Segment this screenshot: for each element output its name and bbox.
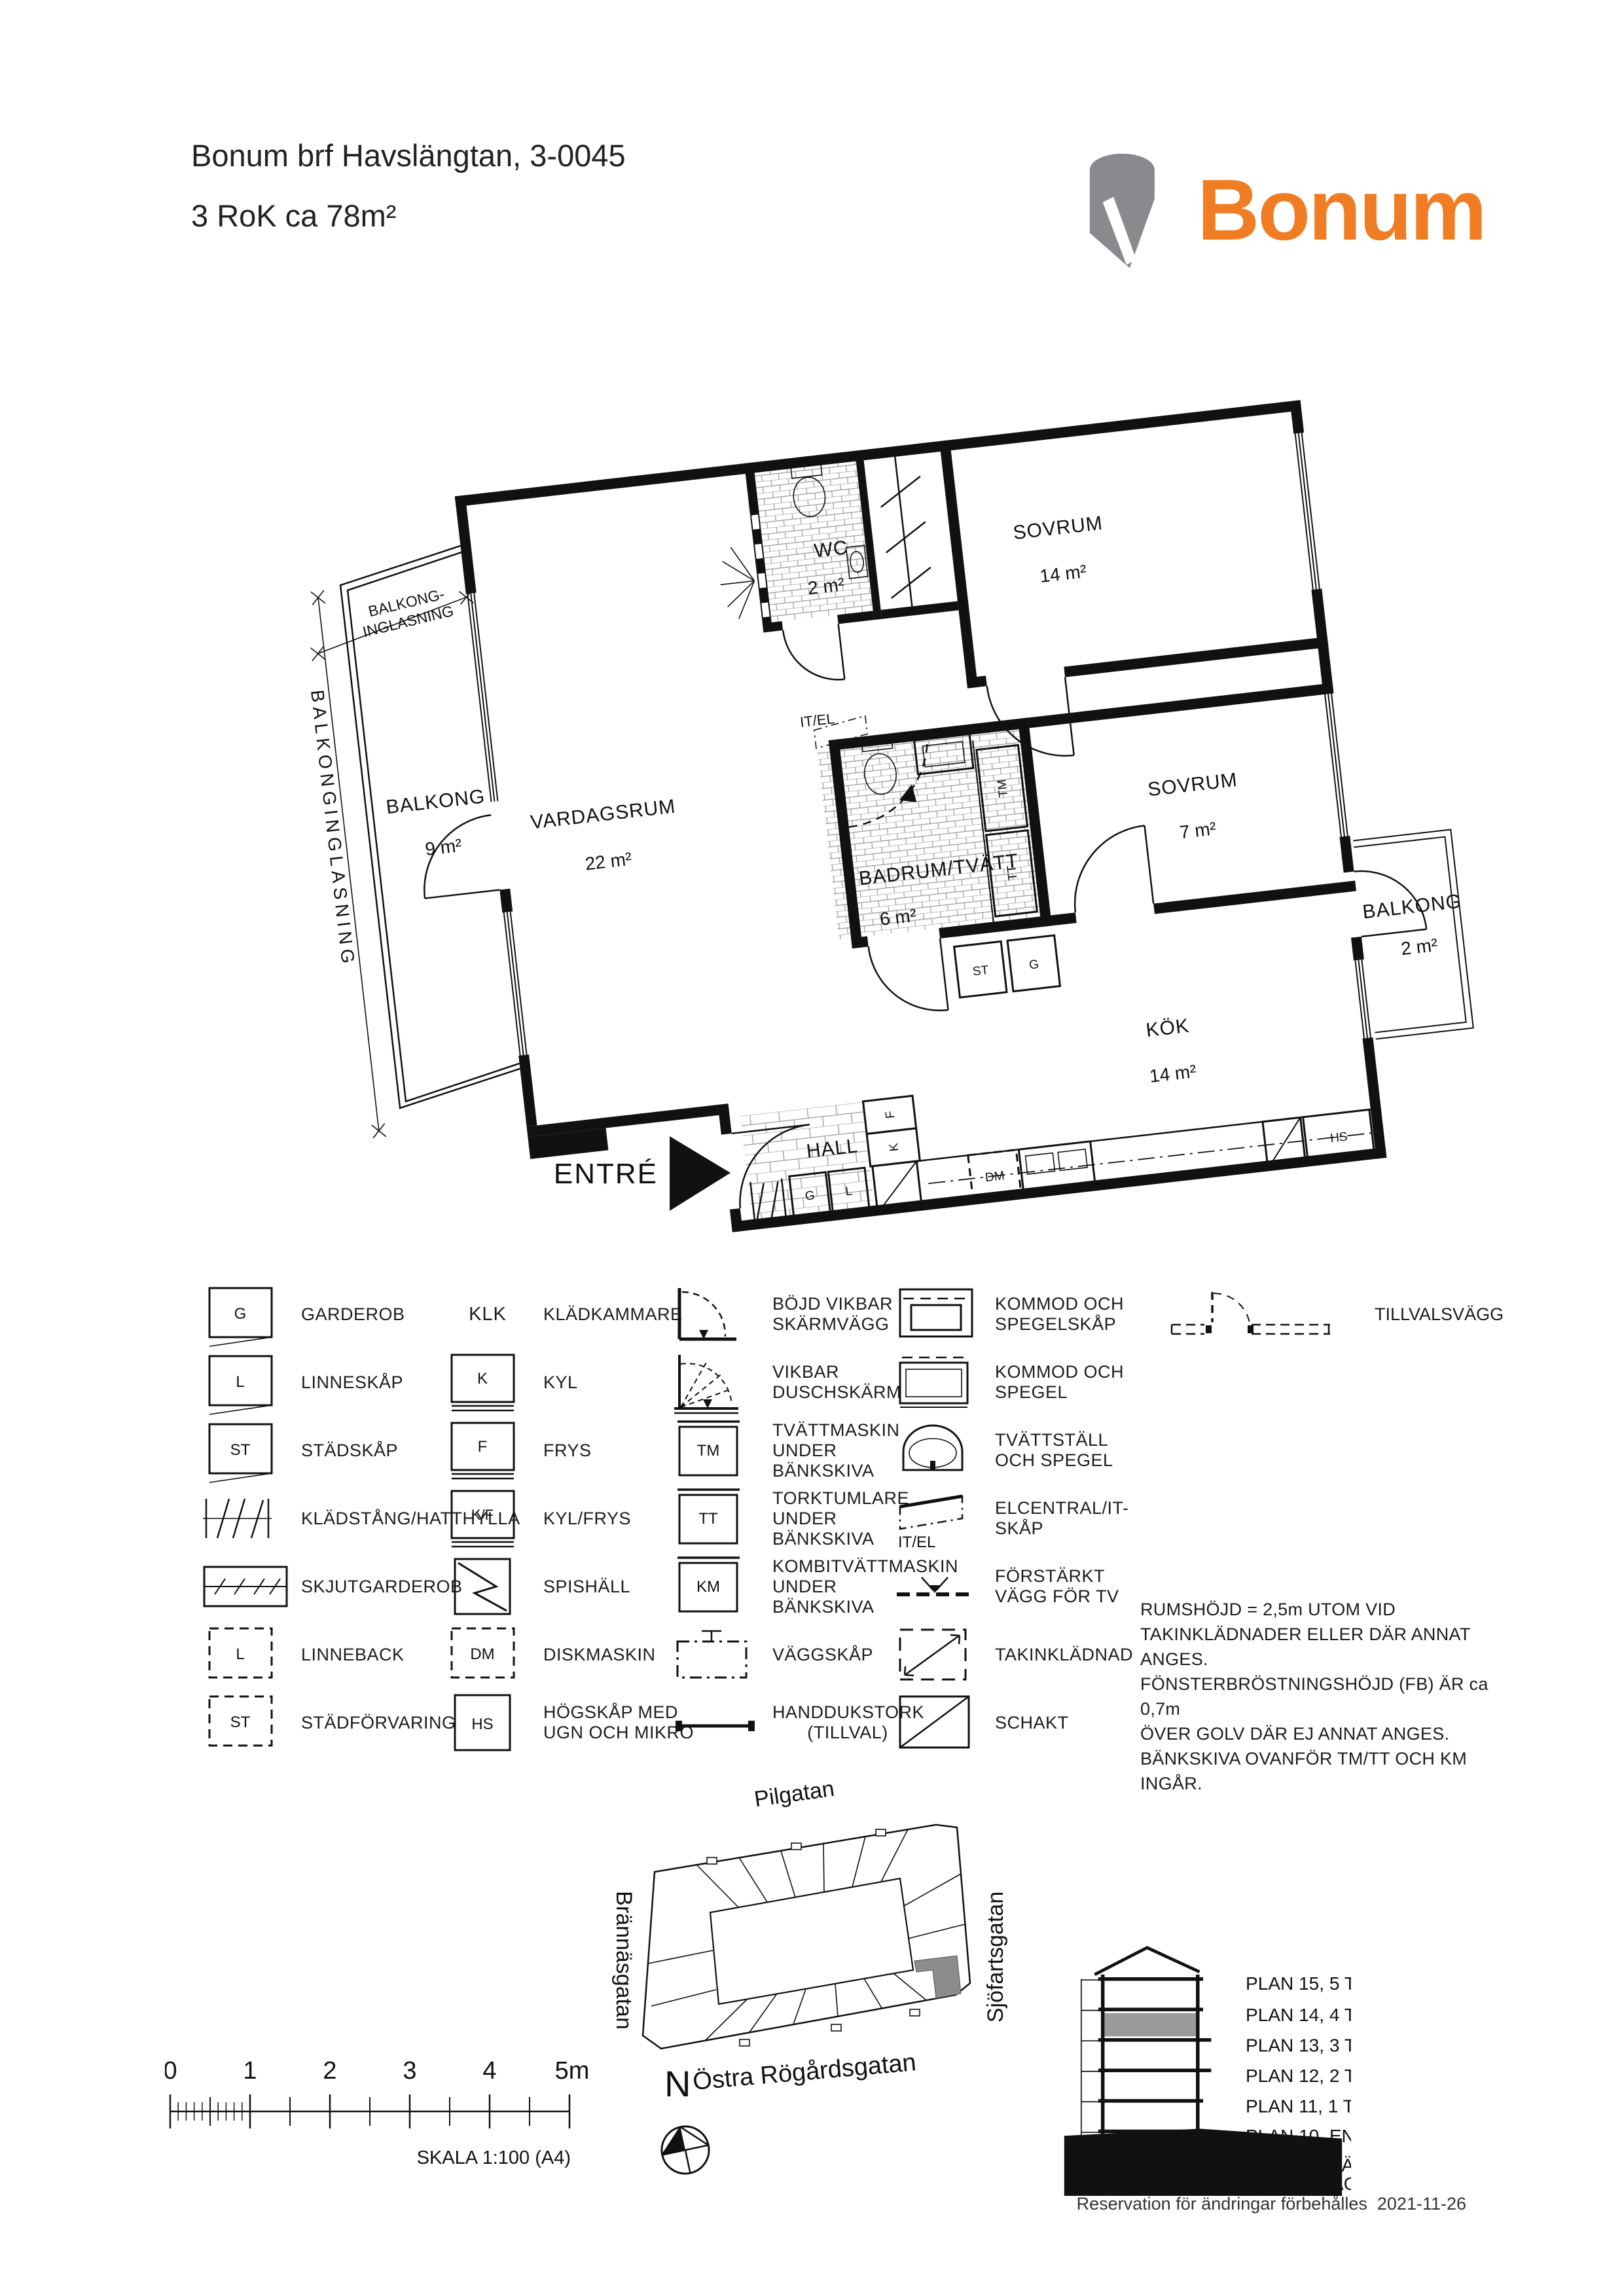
svg-text:F: F <box>478 1438 488 1456</box>
floor-plan: TM TT IT/EL ST G G L <box>275 353 1506 1244</box>
label-it-el: IT/EL <box>799 710 835 730</box>
label-g2: G <box>1028 958 1039 973</box>
room-area-badrum: 6 m² <box>878 905 917 929</box>
floorplan-document: Bonum brf Havslängtan, 3-0045 3 RoK ca 7… <box>0 0 1624 2296</box>
note-line: ÖVER GOLV DÄR EJ ANNAT ANGES. <box>1140 1721 1494 1746</box>
room-label-sovrum2: SOVRUM <box>1147 769 1239 800</box>
wc-door <box>783 624 844 685</box>
legend-item-kommod-spegelskap: KOMMOD OCH SPEGELSKÅP <box>890 1280 1152 1348</box>
room-area-wc: 2 m² <box>806 574 845 598</box>
svg-text:TM: TM <box>697 1442 720 1460</box>
svg-text:PLAN 13, 3 TR: PLAN 13, 3 TR <box>1246 2036 1351 2056</box>
legend-item-spishall: SPISHÄLL <box>439 1552 700 1621</box>
legend-column-3: BÖJD VIKBAR SKÄRMVÄGG VIKBAR DUSCHSKÄRM … <box>668 1280 923 1757</box>
entre-label: ENTRÉ <box>554 1158 658 1190</box>
note-line: RUMSHÖJD = 2,5m UTOM VID <box>1140 1597 1494 1622</box>
svg-text:ST: ST <box>230 1713 251 1731</box>
street-label-sjofartsgatan: Sjöfartsgatan <box>983 1892 1008 2022</box>
svg-text:0: 0 <box>165 2057 177 2085</box>
window-left-wall <box>467 593 526 1056</box>
svg-text:L: L <box>236 1645 244 1663</box>
svg-text:ST: ST <box>230 1441 251 1459</box>
room-label-balkong1: BALKONG <box>385 785 486 818</box>
sovrum2-door <box>1066 825 1153 912</box>
balkong2-railing <box>1353 829 1473 1039</box>
north-indicator: N <box>645 2058 730 2196</box>
section-highlighted-floor <box>1104 2013 1196 2037</box>
room-label-kok: KÖK <box>1145 1015 1191 1041</box>
room-area-sovrum2: 7 m² <box>1178 818 1217 842</box>
legend-item-tvattstall: TVÄTTSTÄLL OCH SPEGEL <box>890 1416 1152 1484</box>
svg-text:G: G <box>234 1305 247 1323</box>
svg-text:L: L <box>236 1373 244 1391</box>
title-line-1: Bonum brf Havslängtan, 3-0045 <box>191 126 626 186</box>
building-section: PLAN 15, 5 TR PLAN 14, 4 TR PLAN 13, 3 T… <box>1055 1936 1351 2196</box>
room-area-kok: 14 m² <box>1148 1061 1197 1086</box>
label-f: F <box>883 1110 897 1119</box>
legend-item-kommod-spegel: KOMMOD OCH SPEGEL <box>890 1348 1152 1416</box>
room-area-balkong1: 9 m² <box>424 835 463 859</box>
legend-item-handdukstork: HANDDUKSTORK (TILLVAL) <box>668 1689 923 1757</box>
room-label-balkong2: BALKONG <box>1362 890 1463 923</box>
legend-item-torktumlare: TT TORKTUMLARE UNDER BÄNKSKIVA <box>668 1484 923 1552</box>
svg-text:PLAN 14, 4 TR: PLAN 14, 4 TR <box>1246 2005 1351 2025</box>
label-tm: TM <box>995 779 1011 798</box>
svg-text:PLAN 10, ENTRÉ: PLAN 10, ENTRÉ <box>1246 2126 1351 2146</box>
note-line: TAKINKLÄDNADER ELLER DÄR ANNAT ANGES. <box>1140 1622 1494 1672</box>
svg-text:IT/EL: IT/EL <box>898 1534 935 1551</box>
svg-text:PLAN 12, 2 TR: PLAN 12, 2 TR <box>1246 2066 1351 2086</box>
footer-text: Reservation för ändringar förbehålles <box>1077 2194 1367 2214</box>
balkonginglasning-annotation: BALKONG- INGLASNING BALKONGINGLASNING <box>296 574 532 1140</box>
title-line-2: 3 RoK ca 78m² <box>191 186 626 246</box>
legend-item-vaggskap: VÄGGSKÅP <box>668 1621 923 1689</box>
svg-text:TT: TT <box>698 1510 718 1528</box>
kladstang-symbol <box>875 454 935 615</box>
footer-note: Reservation för ändringar förbehålles 20… <box>916 2194 1466 2214</box>
legend-item-tillvalsvagg-label: TILLVALSVÄGG <box>1375 1304 1504 1325</box>
legend-item-diskmaskin: DM DISKMASKIN <box>439 1621 700 1689</box>
street-label-pilgatan: Pilgatan <box>753 1776 836 1812</box>
room-label-wc: WC <box>813 537 849 562</box>
legend-item-forstarkt-vagg: FÖRSTÄRKT VÄGG FÖR TV <box>890 1552 1152 1621</box>
legend-item-tvattmaskin: TM TVÄTTMASKIN UNDER BÄNKSKIVA <box>668 1416 923 1484</box>
svg-text:K/F: K/F <box>471 1507 494 1523</box>
note-line: FÖNSTERBRÖSTNINGSHÖJD (FB) ÄR ca 0,7m <box>1140 1672 1494 1721</box>
section-floor-labels: PLAN 15, 5 TR PLAN 14, 4 TR PLAN 13, 3 T… <box>1246 1973 1351 2194</box>
legend-item-frys: F FRYS <box>439 1416 700 1484</box>
svg-text:5m: 5m <box>555 2057 590 2085</box>
label-hs: HS <box>1329 1130 1348 1145</box>
compass-icon <box>657 2122 713 2178</box>
bonum-logo-text: Bonum <box>1197 145 1485 276</box>
room-label-sovrum1: SOVRUM <box>1012 512 1104 544</box>
site-plan: Pilgatan Brännäsgatan Sjöfartsgatan Östr… <box>569 1767 1047 2094</box>
svg-text:PLAN 15, 5 TR: PLAN 15, 5 TR <box>1246 1973 1351 1994</box>
legend-item-vikbar-duschskarm: VIKBAR DUSCHSKÄRM <box>668 1348 923 1416</box>
legend-column-4: KOMMOD OCH SPEGELSKÅP KOMMOD OCH SPEGEL … <box>890 1280 1152 1757</box>
footer-date: 2021-11-26 <box>1377 2194 1466 2214</box>
label-k: K <box>887 1142 901 1152</box>
room-area-balkong2: 2 m² <box>1400 935 1439 959</box>
room-area-vardagsrum: 22 m² <box>584 849 633 874</box>
bonum-logo-icon <box>1080 143 1188 277</box>
scale-bar: 0 1 2 3 4 5m SKALA 1:100 (A4) <box>165 2054 597 2175</box>
north-label: N <box>664 2063 691 2104</box>
room-area-sovrum1: 14 m² <box>1039 561 1088 586</box>
legend-item-kladkammare: KLK KLÄDKAMMARE <box>439 1280 700 1348</box>
entre-arrow-icon <box>670 1136 731 1211</box>
svg-text:K: K <box>477 1370 488 1388</box>
bonum-logo: Bonum <box>1080 143 1485 277</box>
svg-text:1: 1 <box>243 2057 257 2085</box>
plan-rotated-group: TM TT IT/EL ST G G L <box>287 388 1489 1244</box>
note-line: BÄNKSKIVA OVANFÖR TM/TT OCH KM INGÅR. <box>1140 1746 1494 1796</box>
svg-text:DM: DM <box>470 1645 494 1663</box>
legend-column-2: KLK KLÄDKAMMARE K KYL F FRYS K/F KYL/FRY… <box>439 1280 700 1757</box>
legend-item-tillvalsvagg-icon <box>1165 1284 1342 1346</box>
svg-text:2: 2 <box>323 2057 336 2085</box>
page-title: Bonum brf Havslängtan, 3-0045 3 RoK ca 7… <box>191 126 626 246</box>
legend-item-bojd-vikbar: BÖJD VIKBAR SKÄRMVÄGG <box>668 1280 923 1348</box>
legend-item-takinkladnad: TAKINKLÄDNAD <box>890 1621 1152 1689</box>
legend-item-schakt: SCHAKT <box>890 1689 1152 1757</box>
room-label-vardagsrum: VARDAGSRUM <box>530 795 677 833</box>
label-hall-g: G <box>804 1189 816 1204</box>
legend-item-kyl: K KYL <box>439 1348 700 1416</box>
label-dm: DM <box>984 1169 1005 1185</box>
svg-text:KM: KM <box>696 1578 720 1596</box>
scale-caption: SKALA 1:100 (A4) <box>417 2147 571 2168</box>
svg-text:PLAN 11, 1 TR: PLAN 11, 1 TR <box>1246 2096 1351 2117</box>
svg-text:HS: HS <box>471 1715 493 1733</box>
svg-text:PLAN 09, KÄLLARE: PLAN 09, KÄLLARE <box>1246 2155 1351 2175</box>
badrum-door <box>869 939 948 1018</box>
street-label-brannasgatan: Brännäsgatan <box>611 1891 636 2030</box>
legend-item-kombitvattmaskin: KM KOMBITVÄTTMASKIN UNDER BÄNKSKIVA <box>668 1552 923 1621</box>
site-buildings <box>643 1825 970 2049</box>
legend-item-elcentral: IT/EL ELCENTRAL/IT-SKÅP <box>890 1484 1152 1552</box>
notes-block: RUMSHÖJD = 2,5m UTOM VID TAKINKLÄDNADER … <box>1140 1597 1494 1796</box>
label-st: ST <box>972 963 990 979</box>
legend-item-hogskap: HS HÖGSKÅP MED UGN OCH MIKRO <box>439 1689 700 1757</box>
legend-item-kylfrys: K/F KYL/FRYS <box>439 1484 700 1552</box>
svg-text:4: 4 <box>482 2057 496 2085</box>
svg-text:3: 3 <box>403 2057 416 2085</box>
svg-text:OCH GARAGE: OCH GARAGE <box>1246 2174 1351 2194</box>
